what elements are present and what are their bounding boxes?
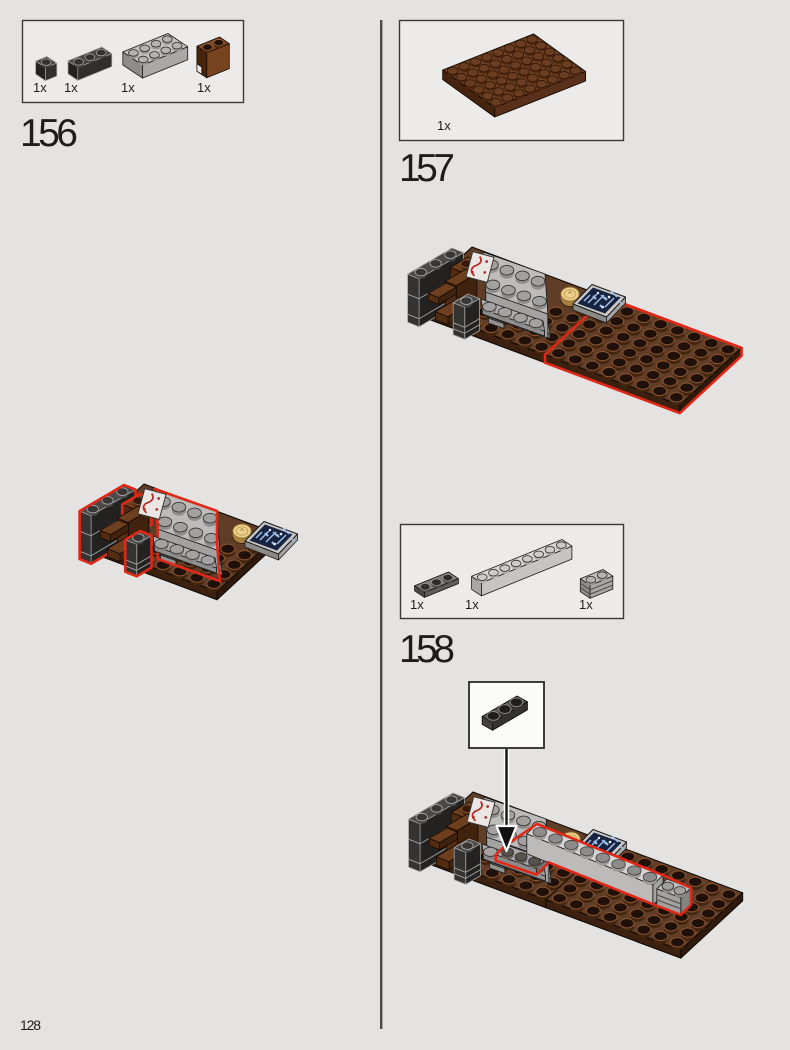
svg-text:158: 158 <box>399 628 455 671</box>
svg-text:1x: 1x <box>410 597 424 612</box>
svg-text:1x: 1x <box>33 80 47 95</box>
svg-text:156: 156 <box>20 112 78 155</box>
svg-text:1x: 1x <box>465 597 479 612</box>
svg-text:128: 128 <box>20 1017 41 1033</box>
svg-text:1x: 1x <box>197 80 211 95</box>
svg-text:157: 157 <box>399 147 455 190</box>
svg-text:1x: 1x <box>437 118 451 133</box>
svg-text:1x: 1x <box>64 80 78 95</box>
svg-text:1x: 1x <box>121 80 135 95</box>
svg-text:1x: 1x <box>579 597 593 612</box>
